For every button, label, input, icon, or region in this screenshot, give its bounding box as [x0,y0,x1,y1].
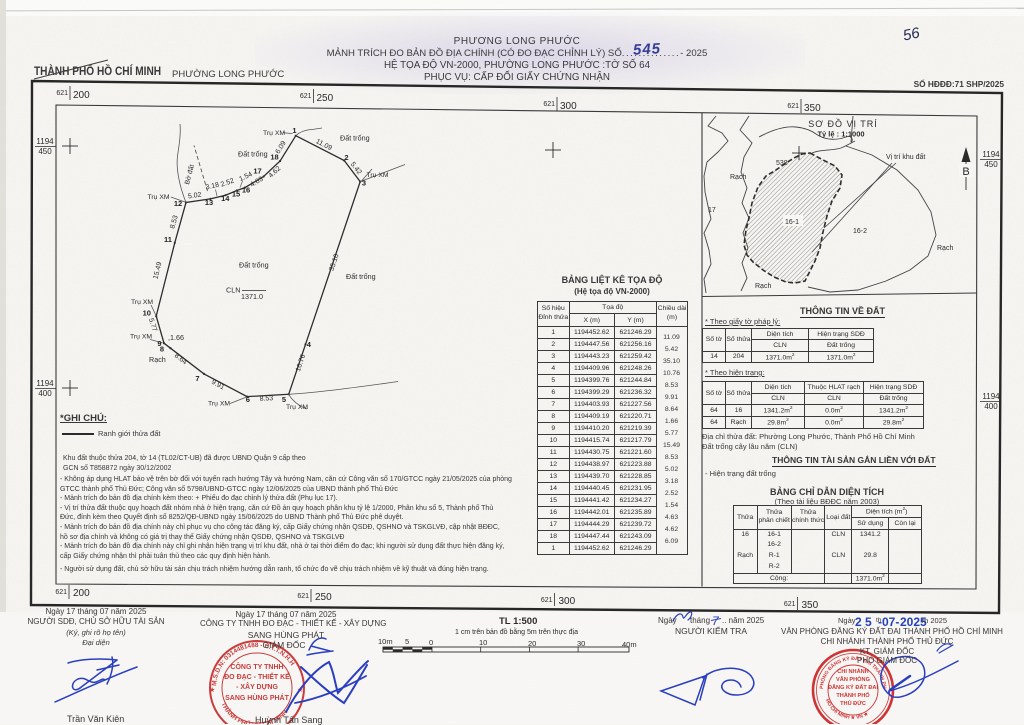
svg-text:THÀNH PHỐ: THÀNH PHỐ [836,692,870,699]
svg-text:Trụ XM: Trụ XM [286,404,308,411]
svg-text:10m: 10m [378,637,393,646]
svg-text:200: 200 [73,588,90,599]
svg-text:CHI NHÁNH: CHI NHÁNH [837,668,868,675]
svg-text:Trụ XM: Trụ XM [148,194,170,201]
svg-text:300: 300 [560,101,577,112]
svg-text:6: 6 [246,395,250,404]
svg-text:Đất trống: Đất trống [346,272,376,281]
svg-text:17: 17 [708,207,716,214]
svg-text:Trụ XM: Trụ XM [367,172,389,179]
svg-text:Trụ XM: Trụ XM [263,130,285,137]
svg-text:SƠ ĐỒ VỊ TRÍ: SƠ ĐỒ VỊ TRÍ [808,118,878,129]
svg-text:7: 7 [195,374,199,383]
svg-text:11: 11 [164,235,172,244]
svg-text:Trụ XM: Trụ XM [208,401,230,408]
svg-text:621: 621 [56,90,68,97]
svg-text:1371.0: 1371.0 [241,292,263,301]
svg-text:9: 9 [157,339,161,348]
svg-text:1194: 1194 [982,392,1000,401]
svg-text:Vị trí khu đất: Vị trí khu đất [886,152,925,161]
svg-text:Rạch: Rạch [730,174,746,181]
svg-text:VĂN PHÒNG: VĂN PHÒNG [836,675,870,683]
svg-text:- XÂY DỰNG: - XÂY DỰNG [236,682,278,691]
svg-text:5: 5 [405,637,409,646]
svg-text:621: 621 [300,93,312,100]
svg-text:Trụ XM: Trụ XM [131,299,153,306]
svg-text:300: 300 [559,596,576,607]
svg-text:0: 0 [429,638,433,647]
svg-text:10: 10 [479,638,487,647]
svg-text:621: 621 [297,593,309,600]
svg-text:400: 400 [984,402,998,411]
svg-text:621: 621 [543,101,555,108]
svg-text:Đất trống: Đất trống [239,261,269,270]
svg-text:12: 12 [174,199,182,208]
svg-text:★: ★ [209,686,215,694]
svg-text:200: 200 [73,90,90,101]
svg-text:TL 1:500: TL 1:500 [499,616,537,627]
svg-text:Tỷ lệ : 1:1000: Tỷ lệ : 1:1000 [817,130,864,139]
svg-text:15: 15 [232,190,240,199]
svg-text:350: 350 [802,600,819,611]
svg-text:250: 250 [317,93,334,104]
svg-text:13: 13 [205,198,213,207]
svg-text:14: 14 [221,194,230,203]
svg-text:17: 17 [253,167,261,176]
svg-text:621: 621 [787,103,799,110]
svg-text:1 cm trên bản đồ bằng 5m trên: 1 cm trên bản đồ bằng 5m trên thực địa [455,627,578,636]
svg-text:ĐĂNG KÝ ĐẤT ĐAI: ĐĂNG KÝ ĐẤT ĐAI [828,684,878,691]
svg-text:Rạch: Rạch [937,245,953,252]
svg-text:621: 621 [55,589,67,596]
svg-text:Trụ XM: Trụ XM [130,334,152,341]
svg-text:Đất trống: Đất trống [340,134,370,143]
svg-text:400: 400 [38,389,52,398]
svg-text:5: 5 [282,395,286,404]
svg-text:3: 3 [362,179,366,188]
svg-text:Rạch: Rạch [149,355,166,364]
svg-text:1194: 1194 [982,150,1000,159]
svg-text:1194: 1194 [36,379,54,388]
svg-text:450: 450 [984,160,998,169]
svg-text:SANG HÙNG PHÁT: SANG HÙNG PHÁT [225,693,290,702]
svg-text:16-1: 16-1 [785,219,799,226]
svg-text:538: 538 [776,160,788,167]
svg-text:8.53: 8.53 [259,395,273,403]
svg-text:10: 10 [143,309,151,318]
svg-text:1194: 1194 [36,137,54,146]
svg-text:621: 621 [541,597,553,604]
svg-text:Đất trống: Đất trống [238,150,268,159]
svg-text:CÔNG TY TNHH: CÔNG TY TNHH [230,662,283,671]
svg-text:250: 250 [315,592,332,603]
svg-text:621: 621 [784,601,796,608]
svg-text:THỦ ĐỨC: THỦ ĐỨC [840,700,866,707]
svg-text:16: 16 [242,186,250,195]
svg-text:450: 450 [38,147,52,156]
svg-text:2: 2 [344,153,348,162]
svg-text:1: 1 [292,126,296,135]
svg-text:350: 350 [804,103,821,114]
svg-text:CLN: CLN [226,286,240,295]
svg-text:B: B [962,166,969,178]
svg-text:16-2: 16-2 [853,228,867,235]
svg-text:,1.66: ,1.66 [168,333,184,342]
svg-text:Rạch: Rạch [755,283,771,290]
